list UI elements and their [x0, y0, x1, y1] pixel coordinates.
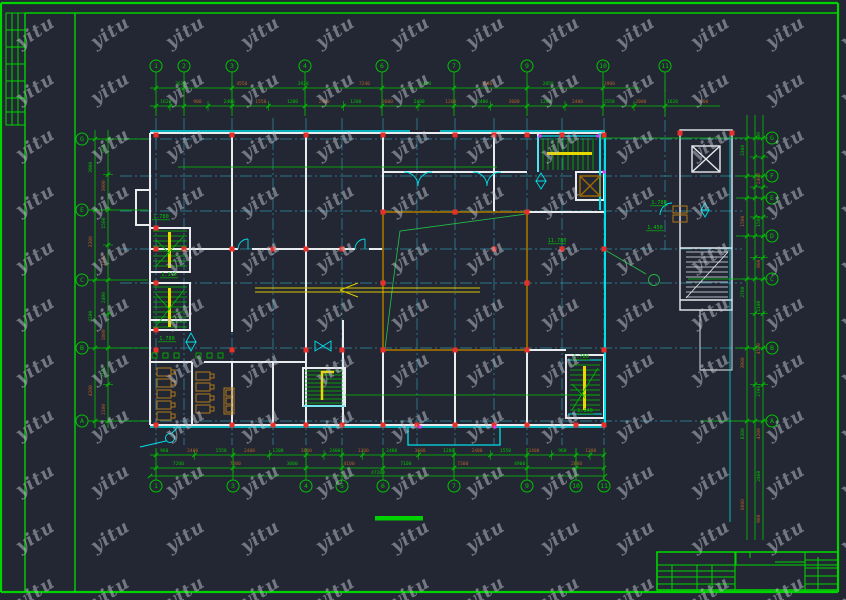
cyan-linework — [140, 130, 730, 522]
column-marker — [304, 348, 309, 353]
column-marker — [560, 247, 565, 252]
column-marker — [182, 247, 187, 252]
elevation-label: 1.780 — [572, 354, 590, 360]
dim-text: 4100 — [344, 461, 355, 467]
column-marker — [730, 131, 735, 136]
column-marker — [492, 247, 497, 252]
grid-bubble: 7 — [448, 480, 460, 492]
fixture-marks-green — [152, 353, 223, 358]
dim-text: A — [770, 417, 774, 425]
columns-layer — [154, 131, 735, 429]
elevation-label: 1.780 — [158, 336, 176, 342]
dim-text: 2400 — [101, 292, 107, 303]
dim-text: 1620 — [160, 99, 171, 105]
scale-bar — [375, 516, 423, 521]
dim-text: 4500 — [756, 343, 762, 354]
dim-text: 3 — [231, 482, 235, 490]
elevation-label: 1.140 — [160, 272, 178, 278]
dim-text: 1550 — [604, 99, 615, 105]
door-symbols — [186, 172, 709, 351]
column-marker — [230, 348, 235, 353]
column-marker — [154, 348, 159, 353]
grid-bubble: 4 — [300, 480, 312, 492]
central-hall — [383, 212, 660, 350]
column-marker — [560, 133, 565, 138]
dim-text: F — [770, 172, 774, 180]
dim-text: 2400 — [224, 99, 235, 105]
dim-text: 2400 — [386, 448, 397, 454]
dim-text: 7200 — [230, 461, 241, 467]
column-marker — [340, 348, 345, 353]
column-marker — [304, 247, 309, 252]
dim-text: 4900 — [514, 461, 525, 467]
grid-bubble: 6 — [376, 60, 388, 72]
dim-text: 3600 — [382, 99, 393, 105]
dim-text: 7100 — [400, 461, 411, 467]
dim-text: 3600 — [301, 448, 312, 454]
stair-bottom-right — [570, 365, 600, 410]
dim-text: 1.140 — [161, 272, 177, 278]
grid-bubble: 4 — [299, 60, 311, 72]
dim-text: 4200 — [88, 385, 94, 396]
cad-viewport[interactable]: 3620455039207240548036002850390016209002… — [0, 0, 846, 600]
dim-text: 960 — [558, 448, 567, 454]
dim-text: 1200 — [443, 448, 454, 454]
dim-text: 2400 — [187, 448, 198, 454]
column-marker — [381, 348, 386, 353]
furniture-layer — [157, 206, 687, 420]
dim-text: 11.780 — [548, 238, 567, 244]
dim-text: 2400 — [756, 173, 762, 184]
dim-text: 1200 — [540, 99, 551, 105]
dim-text: 900 — [700, 99, 709, 105]
dim-text: 2700 — [740, 286, 746, 297]
structural-grid-lines — [120, 80, 742, 445]
dim-text: 1550 — [255, 99, 266, 105]
dim-text: 1.140 — [577, 408, 593, 414]
column-marker — [304, 133, 309, 138]
title-block — [657, 552, 838, 590]
dim-text: B — [770, 344, 774, 352]
column-marker — [230, 133, 235, 138]
elevator-shaft-icon — [580, 176, 600, 196]
dim-text: 960 — [160, 448, 169, 454]
dim-text: 2400 — [319, 99, 330, 105]
dim-text: 9 — [525, 482, 529, 490]
dim-text: 1.780 — [573, 354, 589, 360]
grid-bubble: E — [76, 204, 88, 216]
dim-text: 1.780 — [651, 200, 667, 206]
stair-top-right — [543, 138, 593, 170]
dim-text: 2400 — [528, 448, 539, 454]
column-marker — [154, 423, 159, 428]
dim-text: 1550 — [216, 448, 227, 454]
dim-text: 6600 — [740, 499, 746, 510]
dim-text: 10 — [572, 482, 580, 490]
dim-text: 1800 — [101, 255, 107, 266]
column-marker — [525, 348, 530, 353]
dim-text: 2700 — [756, 385, 762, 396]
dim-text: 1 — [154, 482, 158, 490]
dim-text: 3 — [230, 62, 234, 70]
dim-text: 3600 — [509, 99, 520, 105]
dim-text: 2000 — [635, 99, 646, 105]
dim-text: 2400 — [244, 448, 255, 454]
elevation-labels-layer: 1.7801.1401.78011.7801.7801.1401.7801.45… — [152, 200, 668, 414]
grid-bubble: 3 — [226, 60, 238, 72]
grid-bubble: A — [76, 415, 88, 427]
column-marker — [381, 133, 386, 138]
dim-text: G — [770, 134, 774, 142]
dim-text: 6 — [381, 482, 385, 490]
dim-text: 2100 — [101, 366, 107, 377]
column-marker — [602, 133, 607, 138]
column-marker — [453, 210, 458, 215]
dim-text: 4200 — [88, 310, 94, 321]
column-marker — [453, 133, 458, 138]
column-marker — [525, 423, 530, 428]
grid-bubble: 3 — [227, 480, 239, 492]
dim-text: 9 — [525, 62, 529, 70]
grid-bubble: 1 — [150, 60, 162, 72]
dim-text: 1500 — [740, 215, 746, 226]
column-marker — [154, 247, 159, 252]
dim-text: 2400 — [477, 99, 488, 105]
dim-text: 1 — [154, 62, 158, 70]
dim-text: 1.780 — [153, 214, 169, 220]
dim-text: 4 — [304, 482, 308, 490]
dim-text: 4550 — [236, 81, 247, 87]
dim-text: 1500 — [756, 215, 762, 226]
dim-text: E — [770, 194, 774, 202]
dim-text: 3600 — [481, 81, 492, 87]
column-marker — [602, 423, 607, 428]
cad-drawing: 3620455039207240548036002850390016209002… — [0, 0, 846, 600]
elevation-label: 11.780 — [548, 238, 567, 244]
node-dot — [539, 135, 542, 138]
dim-text: 2400 — [572, 99, 583, 105]
dim-text: 2 — [182, 62, 186, 70]
dim-text: 2850 — [543, 81, 554, 87]
walls-layer — [136, 133, 605, 425]
dim-text: 11 — [600, 482, 608, 490]
dim-text: 10 — [599, 62, 607, 70]
sheet-frame — [1, 3, 838, 592]
dim-text: 1200 — [272, 448, 283, 454]
dim-text: 7300 — [457, 461, 468, 467]
column-marker — [340, 423, 345, 428]
dim-text: 5 — [340, 482, 344, 490]
column-marker — [154, 133, 159, 138]
column-marker — [230, 423, 235, 428]
dim-text: 7240 — [359, 81, 370, 87]
revision-strip-table — [6, 13, 25, 125]
dim-text: C — [80, 276, 84, 284]
grid-bubble: 2 — [178, 60, 190, 72]
column-marker — [381, 281, 386, 286]
dim-text: 900 — [756, 132, 762, 141]
dim-text: 1200 — [358, 448, 369, 454]
dim-text: 800 — [756, 259, 762, 268]
dim-text: 2400 — [329, 448, 340, 454]
dim-text: 3600 — [415, 448, 426, 454]
elevation-label: 1.780 — [152, 214, 170, 220]
annotation-lines — [178, 167, 600, 395]
dim-text: A — [80, 417, 84, 425]
dim-text: 1.450 — [647, 225, 663, 231]
dim-text: 3300 — [88, 236, 94, 247]
column-marker — [154, 328, 159, 333]
grid-bubble: 10 — [597, 60, 609, 72]
dim-text: 3600 — [287, 461, 298, 467]
dim-text: 6300 — [740, 428, 746, 439]
dim-text: 2400 — [471, 448, 482, 454]
node-dot — [603, 171, 606, 174]
column-marker — [602, 247, 607, 252]
column-marker — [492, 133, 497, 138]
column-marker — [453, 348, 458, 353]
grid-bubble: 9 — [521, 60, 533, 72]
column-marker — [340, 247, 345, 252]
dim-text: E — [80, 206, 84, 214]
column-marker — [525, 210, 530, 215]
elevation-label: 1.450 — [646, 225, 664, 231]
dim-text: 1200 — [585, 448, 596, 454]
dim-text: 2100 — [756, 300, 762, 311]
dim-text: 3300 — [740, 145, 746, 156]
dim-text: 7 — [452, 482, 456, 490]
dim-text: 3620 — [175, 81, 186, 87]
dim-text: 1500 — [101, 217, 107, 228]
dim-text: 1200 — [287, 99, 298, 105]
elevation-label: 1.140 — [576, 408, 594, 414]
column-marker — [304, 423, 309, 428]
node-dot — [419, 426, 422, 429]
dim-text: 3000 — [101, 180, 107, 191]
grid-bubble: 11 — [659, 60, 671, 72]
dim-text: 3900 — [88, 161, 94, 172]
grid-bubble: 9 — [521, 480, 533, 492]
dim-text: C — [770, 275, 774, 283]
dim-text: 3920 — [298, 81, 309, 87]
dim-text: 900 — [756, 514, 762, 523]
grid-bubble: 11 — [598, 480, 610, 492]
grid-bubble: 10 — [570, 480, 582, 492]
dim-text: G — [80, 135, 84, 143]
dim-text: 4 — [303, 62, 307, 70]
dim-text: 3900 — [740, 357, 746, 368]
grid-bubble: 5 — [336, 480, 348, 492]
dim-text: 1620 — [667, 99, 678, 105]
dim-text: 7200 — [173, 461, 184, 467]
dim-text: 1.780 — [159, 336, 175, 342]
stair-bottom-center — [305, 371, 343, 403]
dim-text: 3900 — [604, 81, 615, 87]
dim-text: 7 — [452, 62, 456, 70]
column-marker — [525, 133, 530, 138]
dim-text: 11 — [661, 62, 669, 70]
grid-bubble: 1 — [150, 480, 162, 492]
elevation-label: 1.780 — [650, 200, 668, 206]
dim-text: D — [770, 232, 774, 240]
grid-bubble: 6 — [377, 480, 389, 492]
node-dot — [494, 426, 497, 429]
column-marker — [678, 131, 683, 136]
column-marker — [525, 281, 530, 286]
column-marker — [230, 247, 235, 252]
annex-wing — [680, 130, 732, 370]
dim-text: 900 — [101, 144, 107, 153]
column-marker — [154, 226, 159, 231]
dim-text: 1550 — [500, 448, 511, 454]
column-marker — [271, 423, 276, 428]
column-marker — [602, 348, 607, 353]
grid-bubble: C — [76, 274, 88, 286]
column-marker — [381, 423, 386, 428]
column-marker — [453, 423, 458, 428]
column-marker — [381, 210, 386, 215]
dim-text: B — [80, 344, 84, 352]
grid-bubble: B — [76, 342, 88, 354]
dim-text: 5480 — [420, 81, 431, 87]
dim-text: 2400 — [414, 99, 425, 105]
column-marker — [271, 247, 276, 252]
dim-text: 1200 — [445, 99, 456, 105]
dim-text: 4200 — [756, 428, 762, 439]
column-marker — [574, 423, 579, 428]
corridor-guides — [255, 283, 480, 297]
dim-text: 1800 — [101, 329, 107, 340]
dim-text: 900 — [193, 99, 202, 105]
dim-text: 1200 — [350, 99, 361, 105]
node-dot — [597, 135, 600, 138]
grid-bubble: G — [76, 133, 88, 145]
grid-bubble: 7 — [448, 60, 460, 72]
dim-text: 6 — [380, 62, 384, 70]
column-marker — [154, 281, 159, 286]
dim-text: 2800 — [571, 461, 582, 467]
dim-text: 2400 — [756, 470, 762, 481]
dim-text: 2100 — [101, 404, 107, 415]
